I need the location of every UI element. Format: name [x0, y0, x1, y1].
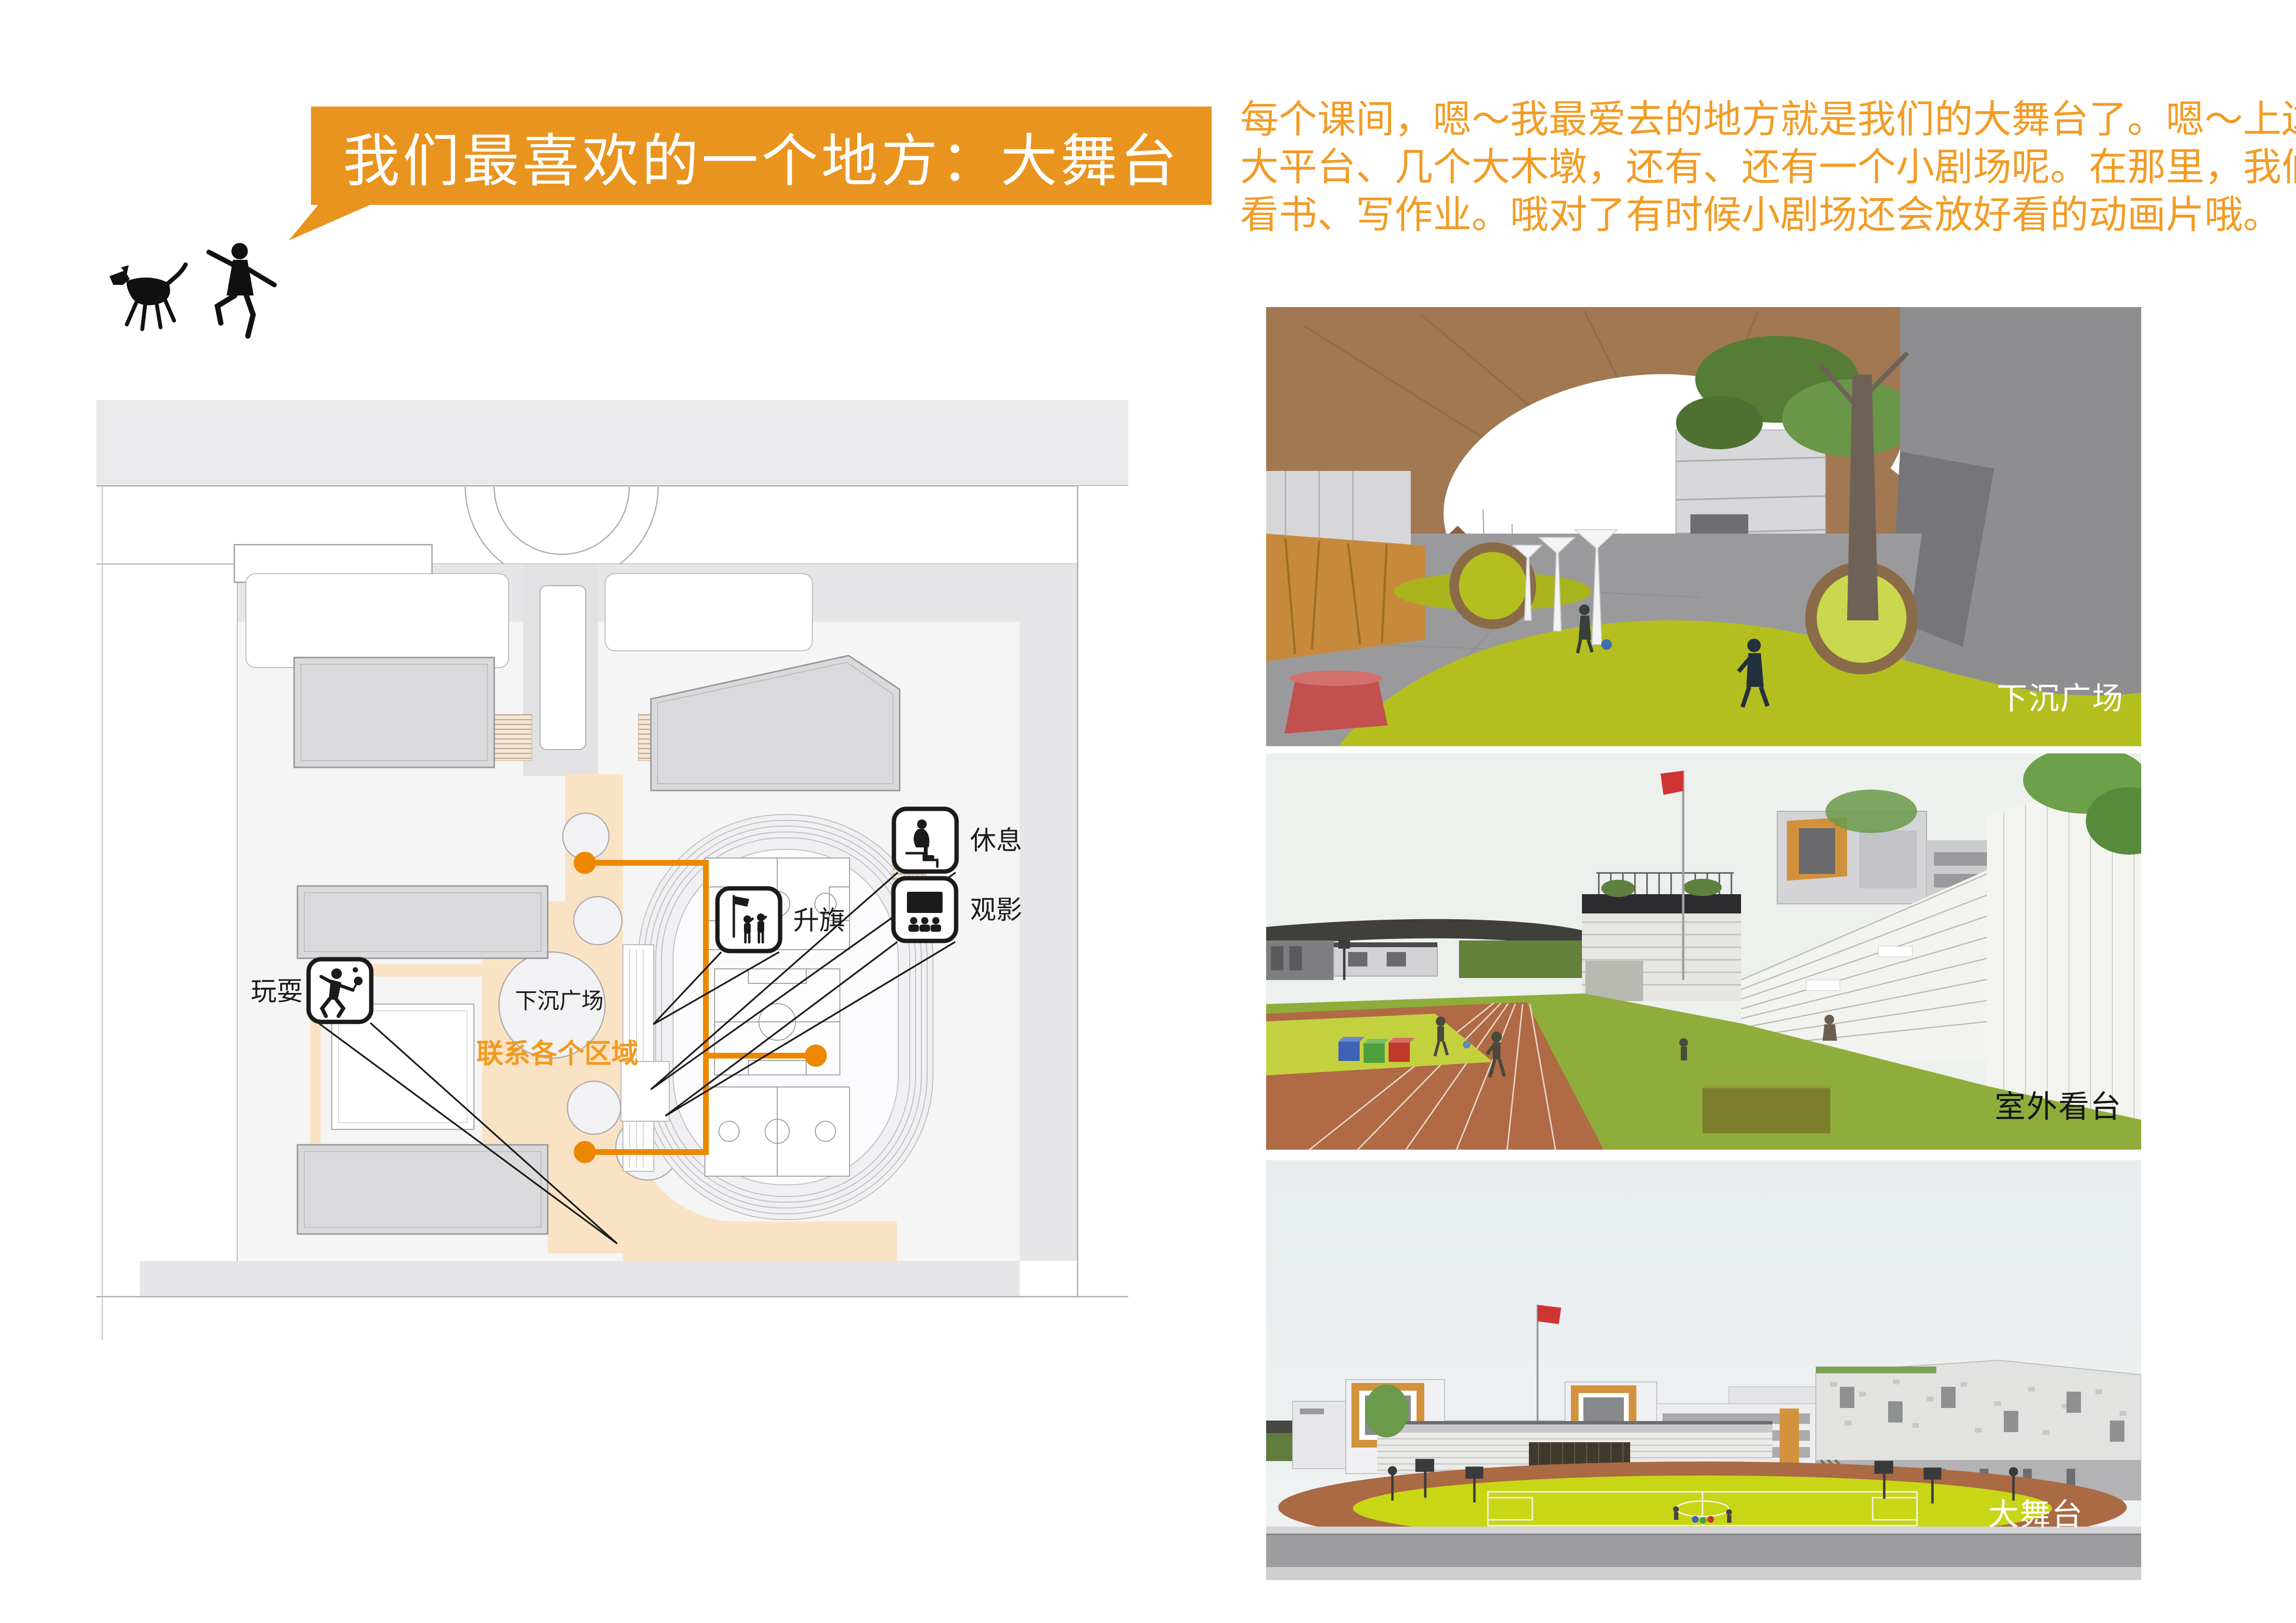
play-icon: [309, 959, 371, 1022]
render-label-sunken-plaza: 下沉广场: [1997, 674, 2124, 718]
render-label-big-stage: 大舞台: [1988, 1490, 2083, 1534]
page-title: 我们最喜欢的一个地方：大舞台: [343, 115, 1180, 197]
render-outdoor-stands: 室外看台: [1266, 753, 2141, 1150]
rest-icon: [894, 809, 957, 872]
label-rest: 休息: [970, 826, 1022, 855]
intro-line-1: 每个课间，嗯～我最爱去的地方就是我们的大舞台了。嗯～上边有: [1240, 95, 2204, 143]
running-child-icon: [209, 243, 274, 336]
flag-raising-icon: [717, 888, 780, 951]
title-banner: 我们最喜欢的一个地方：大舞台: [311, 107, 1212, 205]
render-label-outdoor-stands: 室外看台: [1995, 1082, 2122, 1127]
dog-icon: [109, 265, 186, 329]
label-movie: 观影: [970, 896, 1022, 925]
site-plan: 玩耍 休息 升旗 观影 下沉广场 联系各个区域: [96, 400, 1128, 1340]
intro-paragraph: 每个课间，嗯～我最爱去的地方就是我们的大舞台了。嗯～上边有 大平台、几个大木墩，…: [1240, 95, 2204, 239]
basketball-court-bottom: [705, 1087, 850, 1176]
render-big-stage: 大舞台: [1266, 1160, 2141, 1580]
intro-line-2: 大平台、几个大木墩，还有、还有一个小剧场呢。在那里，我们可以玩、: [1240, 143, 2204, 191]
figures-illustration: [108, 239, 282, 342]
presentation-board: { "banner": { "title": "我们最喜欢的一个地方：大舞台",…: [0, 0, 2296, 1623]
label-play: 玩耍: [251, 977, 303, 1006]
render-sunken-plaza: 下沉广场: [1266, 307, 2141, 746]
intro-line-3: 看书、写作业。哦对了有时候小剧场还会放好看的动画片哦。: [1240, 191, 2204, 239]
movie-icon: [893, 878, 956, 941]
label-connect-zones: 联系各个区域: [476, 1038, 638, 1069]
label-sunken-plaza: 下沉广场: [515, 988, 604, 1013]
banner-tail: [288, 204, 372, 241]
label-flag-raising: 升旗: [793, 906, 845, 935]
